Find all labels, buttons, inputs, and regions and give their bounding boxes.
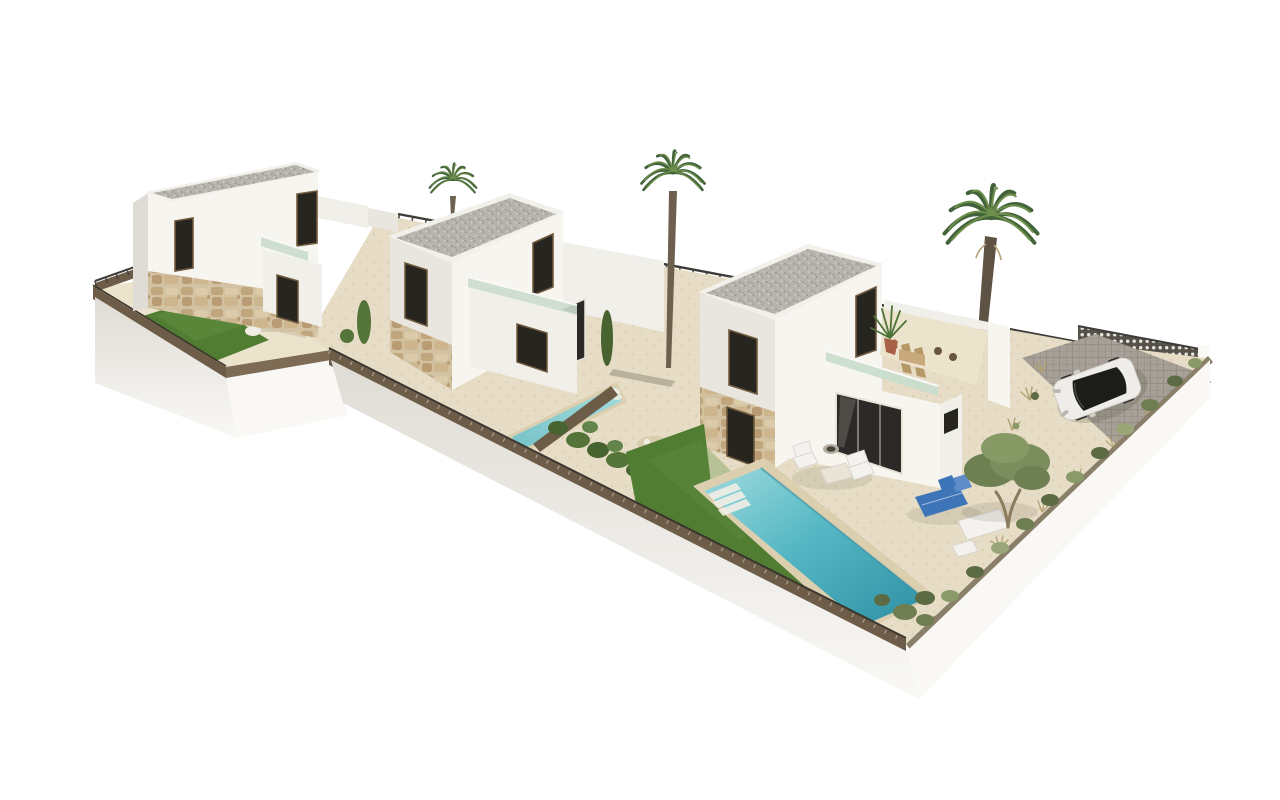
villa3-terrace-parapet-right <box>988 322 1010 408</box>
palm-tree-right <box>945 185 1038 333</box>
render-canvas: Aerial 3D architectural rendering on a w… <box>0 0 1280 800</box>
shrub <box>1013 423 1020 430</box>
villa3-annex-side <box>940 394 962 488</box>
villa3-window-lower <box>727 407 754 466</box>
villa2-window-left <box>405 263 427 326</box>
bush <box>340 329 354 343</box>
villa1-rear-wing <box>318 196 368 228</box>
villa3-window-upper <box>729 330 757 394</box>
villa2-window-right <box>533 234 553 295</box>
villa1-window-1 <box>175 218 193 271</box>
villa1-side-sliver <box>133 193 148 311</box>
villa1-window-2 <box>297 191 317 246</box>
cypress-plant <box>357 300 371 344</box>
shrub <box>1031 392 1039 400</box>
cypress-plant <box>601 310 613 366</box>
villa-render <box>0 0 1280 800</box>
villa1-annex-window <box>277 275 298 323</box>
villa3-upper-door <box>856 287 876 357</box>
